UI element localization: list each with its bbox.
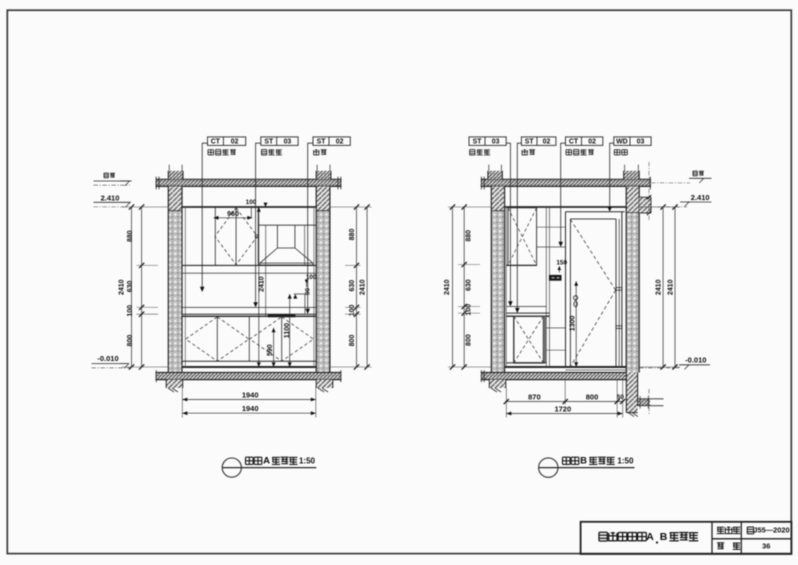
svg-text:-0.010: -0.010	[97, 354, 118, 363]
svg-text:-0.010: -0.010	[685, 355, 706, 364]
svg-text:2410: 2410	[444, 279, 451, 295]
svg-text:150: 150	[556, 260, 567, 267]
svg-text:880: 880	[127, 230, 134, 242]
svg-text:1720: 1720	[554, 404, 571, 413]
svg-text:2410: 2410	[668, 279, 675, 295]
svg-text:800: 800	[349, 335, 356, 347]
svg-text:B: B	[580, 456, 587, 467]
svg-text:800: 800	[466, 334, 473, 346]
svg-text:880: 880	[466, 230, 473, 242]
svg-text:36: 36	[762, 541, 770, 550]
svg-text:590: 590	[267, 344, 274, 356]
svg-text:630: 630	[127, 280, 134, 292]
svg-text:1940: 1940	[242, 390, 259, 399]
svg-text:B: B	[660, 531, 668, 543]
svg-text:100: 100	[127, 305, 134, 317]
svg-text:WD: WD	[616, 138, 628, 145]
svg-text:A: A	[263, 456, 270, 467]
svg-text:J55—2020: J55—2020	[753, 526, 789, 535]
svg-text:2.410: 2.410	[101, 193, 120, 202]
svg-text:2410: 2410	[360, 279, 367, 295]
svg-text:960: 960	[227, 211, 239, 218]
svg-text:800: 800	[586, 393, 599, 402]
svg-text:2410: 2410	[656, 279, 663, 295]
svg-text:A: A	[646, 531, 654, 543]
svg-text:03: 03	[637, 138, 645, 145]
svg-text:1300: 1300	[570, 316, 577, 332]
svg-text:630: 630	[349, 280, 356, 292]
svg-text:90: 90	[304, 288, 311, 296]
svg-text:800: 800	[127, 335, 134, 347]
svg-text:03: 03	[492, 138, 500, 145]
svg-text:CT: CT	[569, 138, 579, 145]
svg-text:ST: ST	[317, 138, 327, 145]
svg-text:50: 50	[617, 395, 624, 401]
svg-text:02: 02	[231, 138, 239, 145]
svg-text:630: 630	[466, 279, 473, 291]
svg-text:870: 870	[528, 393, 541, 402]
svg-text:2410: 2410	[119, 279, 126, 295]
svg-text:100: 100	[246, 199, 257, 206]
svg-text:1:50: 1:50	[617, 457, 634, 466]
svg-text:02: 02	[336, 138, 344, 145]
svg-text:ST: ST	[264, 138, 274, 145]
svg-text:ST: ST	[473, 138, 483, 145]
svg-text:02: 02	[543, 138, 551, 145]
svg-text:100: 100	[466, 304, 473, 316]
svg-text:02: 02	[588, 138, 596, 145]
svg-text:2.410: 2.410	[691, 193, 710, 202]
svg-text:1940: 1940	[242, 404, 259, 413]
svg-text:03: 03	[284, 138, 292, 145]
svg-text:100: 100	[349, 304, 356, 316]
svg-text:1100: 1100	[284, 323, 291, 338]
svg-text:CT: CT	[211, 138, 221, 145]
svg-text:ST: ST	[525, 138, 535, 145]
svg-text:1:50: 1:50	[299, 457, 316, 466]
svg-text:880: 880	[349, 229, 356, 241]
svg-text:2410: 2410	[259, 276, 266, 292]
